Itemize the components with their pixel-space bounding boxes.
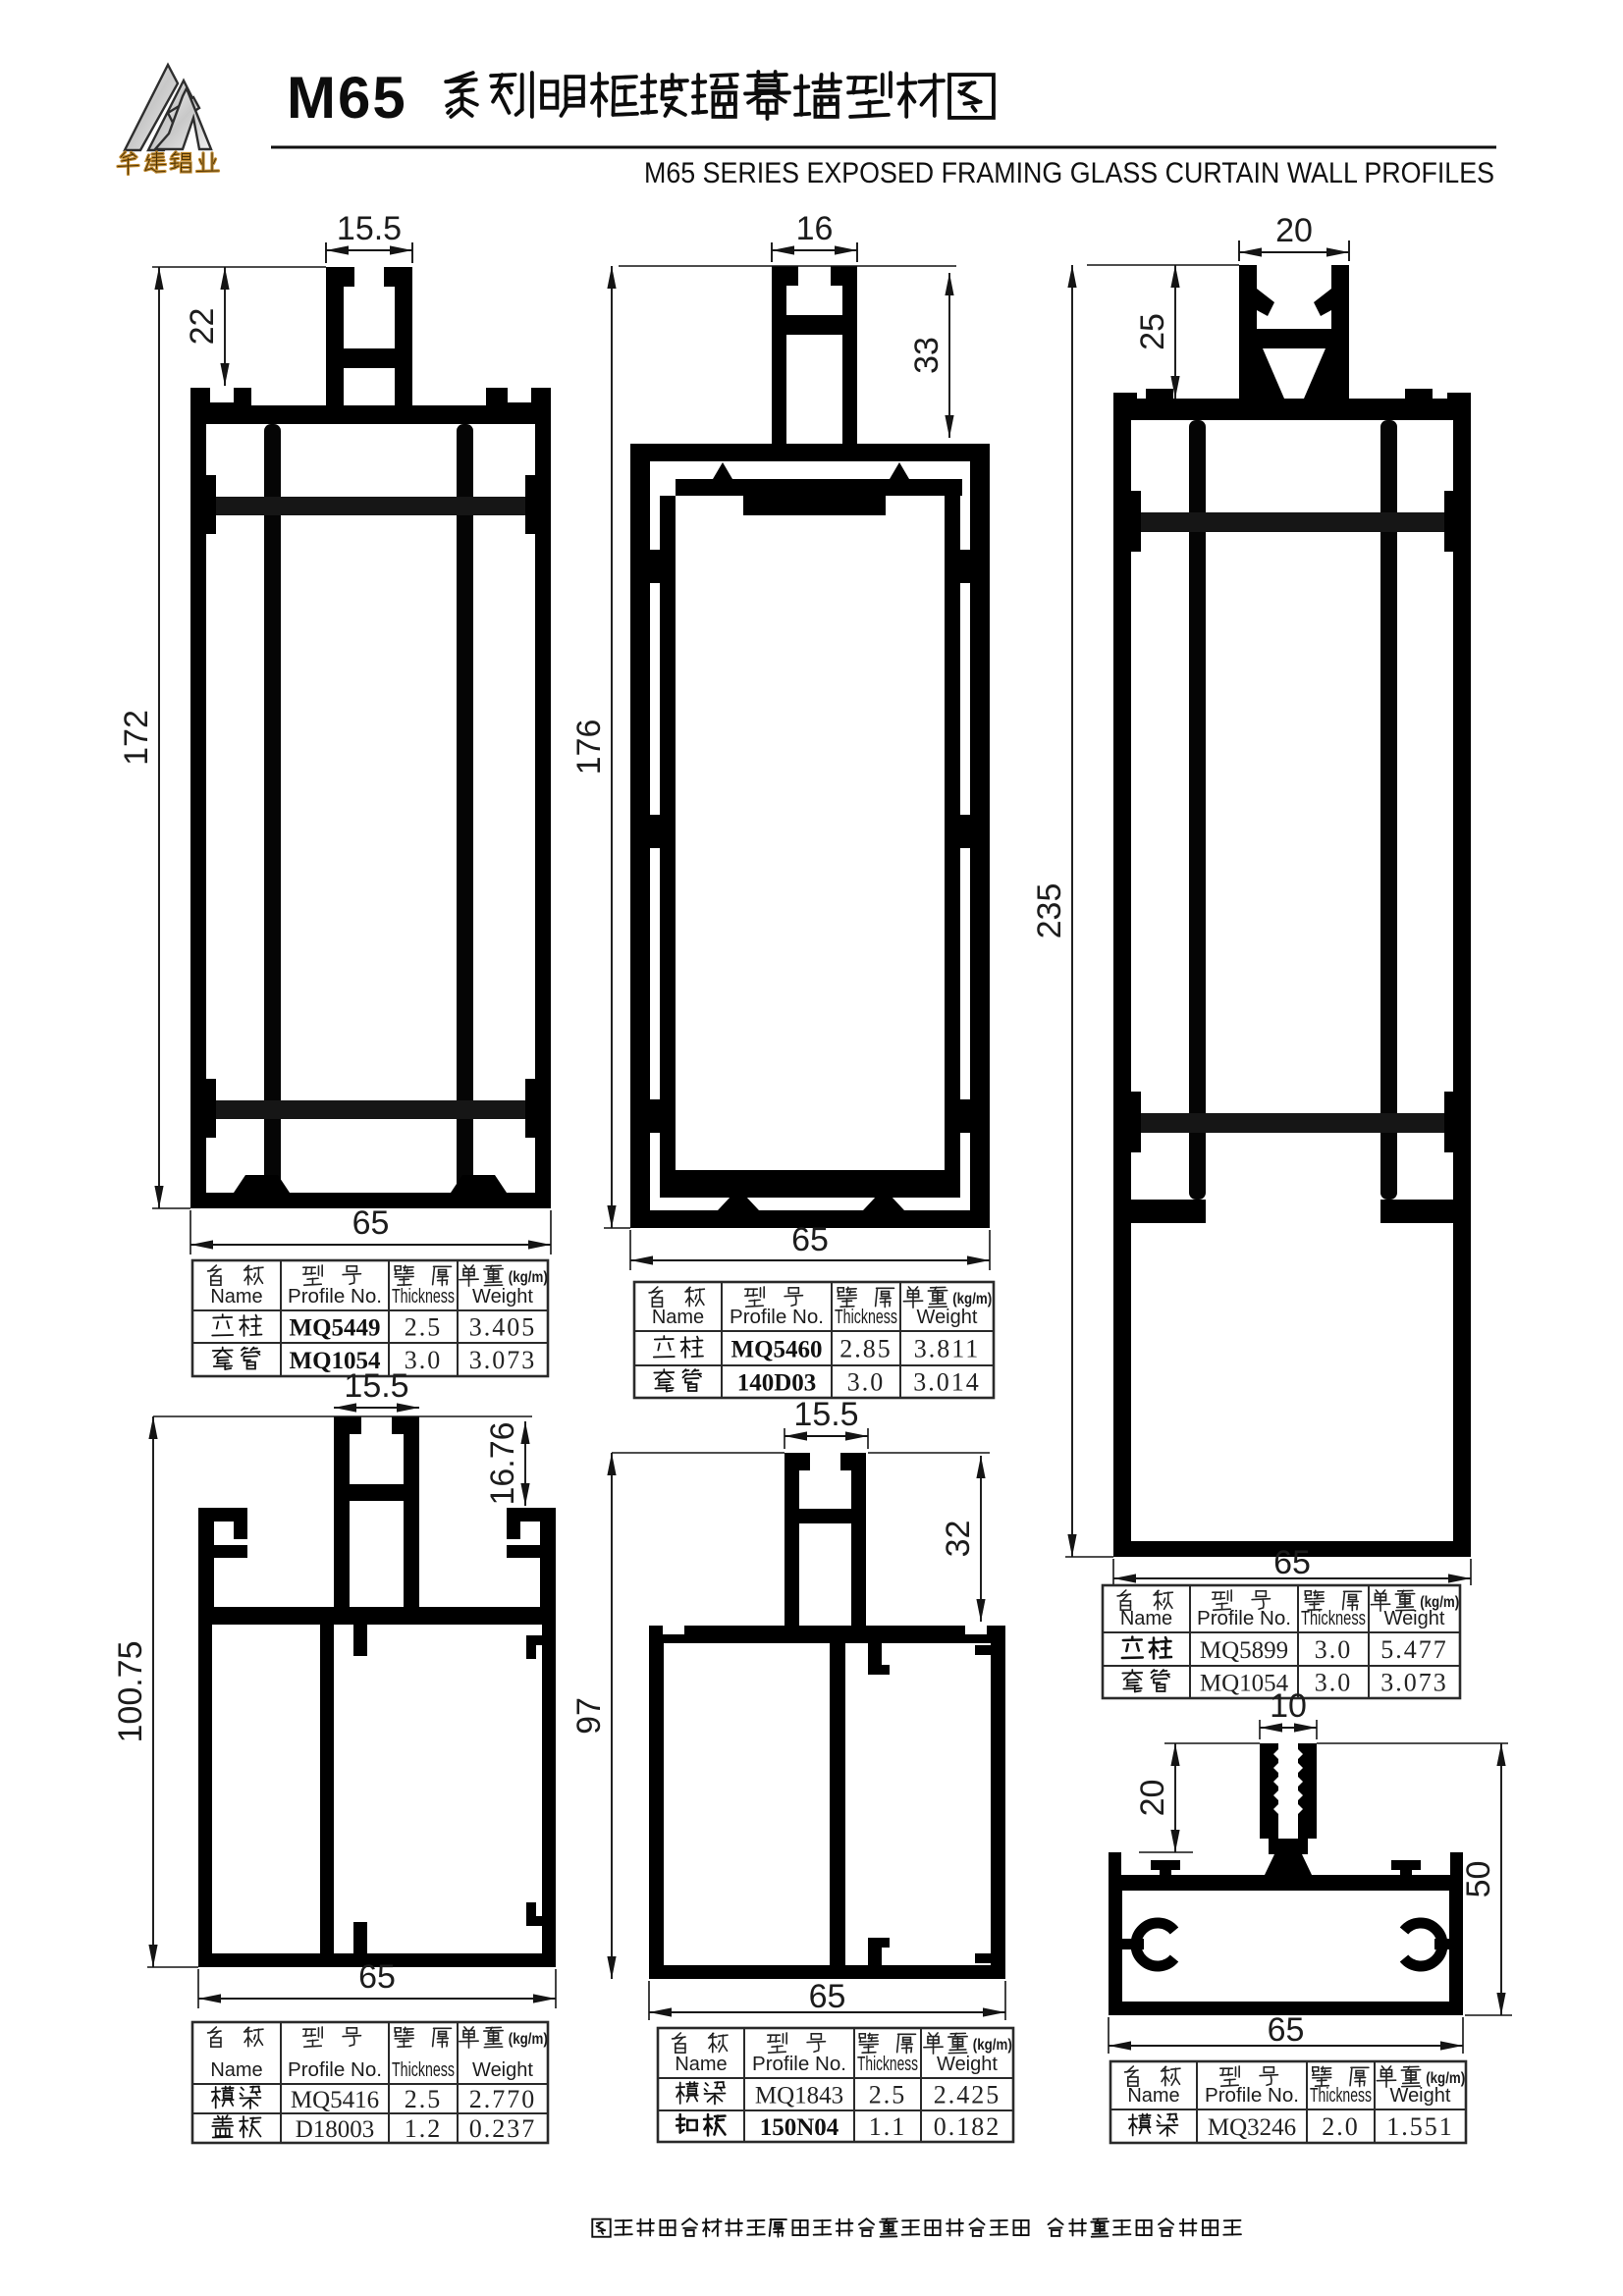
svg-text:Name: Name: [1120, 1608, 1172, 1629]
svg-text:65: 65: [1273, 1544, 1311, 1581]
svg-text:Thickness: Thickness: [1301, 1608, 1366, 1629]
svg-text:2.85: 2.85: [839, 1335, 893, 1363]
svg-text:Weight: Weight: [917, 1307, 978, 1328]
svg-text:Profile No.: Profile No.: [1205, 2085, 1299, 2107]
svg-text:50: 50: [1460, 1861, 1497, 1898]
svg-text:M65: M65: [287, 65, 407, 131]
svg-text:1.2: 1.2: [405, 2114, 443, 2143]
svg-text:15.5: 15.5: [793, 1396, 858, 1433]
svg-text:MQ1843: MQ1843: [755, 2083, 843, 2109]
svg-text:150N04: 150N04: [760, 2114, 839, 2141]
svg-text:2.5: 2.5: [405, 1313, 443, 1342]
svg-text:22: 22: [184, 308, 221, 346]
svg-text:235: 235: [1031, 883, 1068, 939]
svg-text:16.76: 16.76: [484, 1421, 521, 1505]
svg-text:Thickness: Thickness: [835, 1307, 897, 1328]
svg-text:Profile No.: Profile No.: [730, 1307, 824, 1328]
svg-text:140D03: 140D03: [737, 1370, 817, 1397]
svg-text:15.5: 15.5: [337, 210, 402, 247]
svg-text:20: 20: [1275, 212, 1313, 249]
svg-text:2.5: 2.5: [405, 2085, 443, 2113]
svg-text:Profile No.: Profile No.: [1197, 1608, 1291, 1629]
svg-text:0.182: 0.182: [934, 2112, 1001, 2141]
svg-text:Name: Name: [1127, 2085, 1179, 2107]
svg-text:Weight: Weight: [937, 2054, 998, 2075]
svg-text:Weight: Weight: [472, 1286, 533, 1308]
svg-text:Thickness: Thickness: [1310, 2085, 1372, 2107]
svg-text:3.0: 3.0: [1315, 1635, 1353, 1664]
svg-text:MQ5416: MQ5416: [291, 2087, 379, 2113]
svg-text:97: 97: [570, 1697, 608, 1735]
svg-text:M65 SERIES EXPOSED FRAMING GLA: M65 SERIES EXPOSED FRAMING GLASS CURTAIN…: [644, 157, 1494, 189]
svg-text:MQ3246: MQ3246: [1208, 2114, 1296, 2141]
svg-text:Weight: Weight: [1390, 2085, 1451, 2107]
svg-text:3.0: 3.0: [1315, 1669, 1353, 1697]
svg-text:Name: Name: [652, 1307, 704, 1328]
svg-text:Profile No.: Profile No.: [288, 2059, 382, 2081]
svg-text:(kg/m): (kg/m): [509, 1269, 548, 1286]
svg-text:(kg/m): (kg/m): [952, 1291, 992, 1308]
svg-text:65: 65: [352, 1204, 390, 1242]
svg-text:20: 20: [1134, 1780, 1171, 1817]
svg-text:65: 65: [358, 1958, 396, 1996]
svg-text:10: 10: [1270, 1687, 1307, 1725]
svg-text:Profile No.: Profile No.: [288, 1286, 382, 1308]
svg-text:MQ5899: MQ5899: [1200, 1637, 1288, 1664]
svg-text:0.237: 0.237: [469, 2114, 537, 2143]
svg-text:2.425: 2.425: [934, 2081, 1001, 2109]
svg-text:3.073: 3.073: [1380, 1669, 1448, 1697]
svg-text:(kg/m): (kg/m): [973, 2037, 1012, 2054]
svg-text:MQ5460: MQ5460: [730, 1337, 822, 1363]
svg-text:MQ5449: MQ5449: [289, 1315, 380, 1342]
svg-text:Thickness: Thickness: [857, 2054, 918, 2075]
svg-text:5.477: 5.477: [1380, 1635, 1448, 1664]
svg-text:172: 172: [118, 710, 155, 766]
svg-text:3.014: 3.014: [913, 1368, 981, 1397]
svg-text:3.0: 3.0: [405, 1346, 443, 1374]
svg-text:Profile No.: Profile No.: [752, 2054, 846, 2075]
svg-text:2.770: 2.770: [469, 2085, 537, 2113]
svg-text:2.5: 2.5: [869, 2081, 907, 2109]
svg-text:Thickness: Thickness: [392, 1286, 455, 1308]
svg-text:3.073: 3.073: [469, 1346, 537, 1374]
svg-text:3.811: 3.811: [914, 1335, 981, 1363]
svg-text:65: 65: [791, 1221, 829, 1258]
svg-text:16: 16: [796, 210, 834, 247]
svg-text:65: 65: [809, 1978, 846, 2015]
svg-text:Thickness: Thickness: [392, 2059, 455, 2081]
svg-text:32: 32: [940, 1521, 977, 1558]
svg-text:Name: Name: [210, 1286, 262, 1308]
svg-text:(kg/m): (kg/m): [509, 2031, 548, 2048]
svg-text:1.1: 1.1: [869, 2112, 907, 2141]
svg-text:25: 25: [1134, 313, 1171, 350]
svg-text:65: 65: [1268, 2011, 1305, 2049]
svg-text:3.0: 3.0: [847, 1368, 886, 1397]
svg-text:Name: Name: [210, 2059, 262, 2081]
svg-text:Weight: Weight: [1384, 1608, 1445, 1629]
svg-text:Weight: Weight: [472, 2059, 533, 2081]
svg-text:3.405: 3.405: [469, 1313, 537, 1342]
svg-text:2.0: 2.0: [1322, 2112, 1360, 2141]
svg-text:1.551: 1.551: [1386, 2112, 1454, 2141]
svg-text:Name: Name: [675, 2054, 727, 2075]
svg-text:176: 176: [570, 720, 608, 775]
svg-text:100.75: 100.75: [112, 1641, 149, 1743]
svg-text:D18003: D18003: [296, 2116, 375, 2143]
svg-text:15.5: 15.5: [344, 1367, 408, 1405]
svg-text:33: 33: [908, 337, 946, 374]
